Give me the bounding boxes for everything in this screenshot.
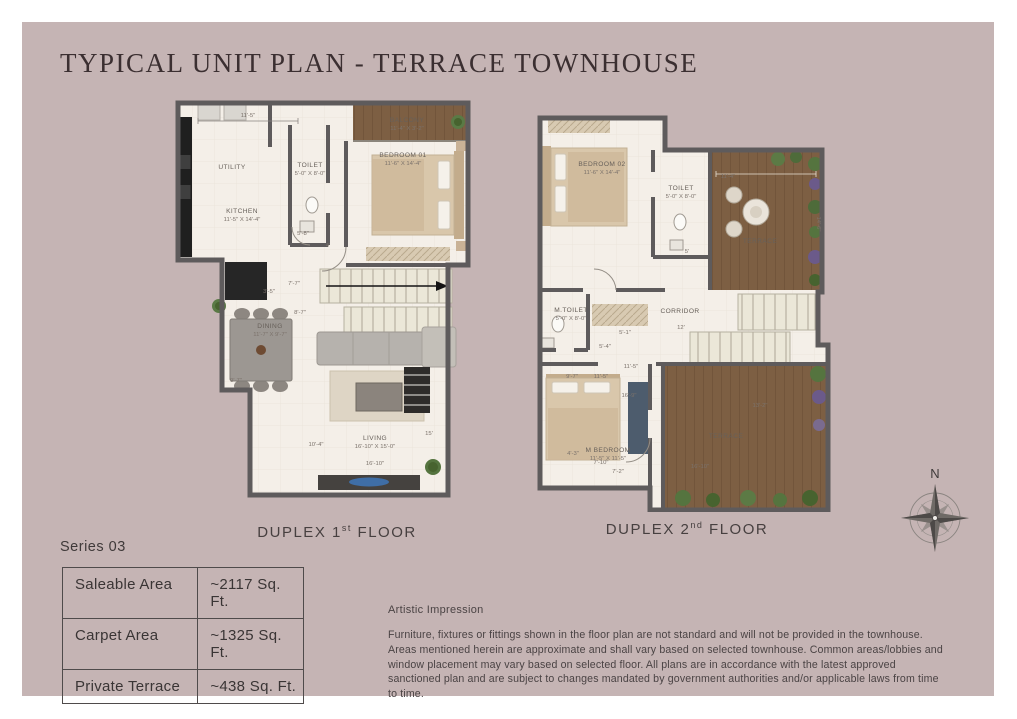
room-label: TOILET [668, 185, 693, 192]
caption-text: DUPLEX 2 [606, 521, 691, 538]
room-label: TOILET [297, 162, 322, 169]
table-row: Carpet Area ~1325 Sq. Ft. [63, 619, 303, 670]
table-row: Saleable Area ~2117 Sq. Ft. [63, 568, 303, 619]
terrace-lower-deck [663, 364, 826, 508]
dimension-label: 16'-10" [366, 461, 384, 467]
dimension-label: 11'-5" [594, 374, 609, 380]
dimension-label: 9'-7" [230, 378, 242, 384]
caption-duplex-2nd: DUPLEX 2nd FLOOR [577, 520, 797, 538]
room-label: UTILITY [218, 164, 246, 171]
dimension-label: 5'-4" [599, 344, 611, 350]
dimension-label: 13'-2" [752, 403, 767, 409]
caption-text: DUPLEX 1 [257, 524, 342, 541]
dimension-label: 8'-7" [294, 310, 306, 316]
room-label: DINING [257, 323, 282, 330]
dimension-label: 11'-5" [241, 113, 256, 119]
caption-text: FLOOR [703, 521, 768, 538]
dimension-label: 7'-10" [593, 460, 608, 466]
room-label: M.TOILET [554, 307, 588, 314]
compass-icon: N [895, 460, 975, 560]
dimension-label: 16'-9" [621, 393, 636, 399]
ordinal-suffix: nd [690, 520, 703, 530]
dimension-label: 16'-10" [691, 464, 709, 470]
area-row-label: Saleable Area [63, 568, 198, 618]
dimension-label: 11'-4" X 3'-2" [390, 126, 424, 132]
dimension-label: 11'-5" X 14'-4" [224, 217, 261, 223]
brochure-page: TYPICAL UNIT PLAN - TERRACE TOWNHOUSE [0, 0, 1017, 719]
sheet-background: TYPICAL UNIT PLAN - TERRACE TOWNHOUSE [22, 22, 994, 696]
area-row-label: Private Terrace [63, 670, 198, 703]
disclaimer-block: Artistic Impression Furniture, fixtures … [388, 604, 950, 702]
dimension-label: 11'-7" X 9'-7" [253, 332, 287, 338]
dimension-label: 5'-0" X 8'-0" [666, 194, 697, 200]
ordinal-suffix: st [342, 523, 352, 533]
table-row: Private Terrace ~438 Sq. Ft. [63, 670, 303, 703]
room-label: CORRIDOR [660, 308, 699, 315]
dimension-label: 5' [685, 249, 689, 255]
corridor-closet [592, 304, 648, 326]
dimension-label: 3'-5" [263, 289, 275, 295]
area-table: Saleable Area ~2117 Sq. Ft. Carpet Area … [62, 567, 304, 704]
room-label: BEDROOM 01 [379, 152, 426, 159]
dimension-label: 11'-4" [721, 174, 736, 180]
dimension-label: 12' [677, 325, 685, 331]
compass-north-label: N [930, 466, 939, 481]
room-label: BALCONY [390, 117, 425, 124]
area-row-value: ~2117 Sq. Ft. [198, 568, 303, 618]
dimension-label: 5'-0" X 8'-0" [295, 171, 326, 177]
terrace-upper-deck [710, 151, 822, 290]
dimension-label: 4'-3" [567, 451, 579, 457]
dimension-label: 7'-2" [612, 469, 624, 475]
floor-plan-duplex-1st: UTILITYKITCHEN11'-5" X 14'-4"TOILET5'-0"… [170, 95, 475, 505]
room-label: KITCHEN [226, 208, 258, 215]
dimension-label: 15' [425, 431, 433, 437]
dimension-label: 11'-6" X 14'-4" [385, 161, 422, 167]
room-label: TERRACE [709, 433, 744, 440]
dimension-label: 5'-1" [619, 330, 631, 336]
dimension-label: 14'-6" [815, 216, 821, 231]
dimension-label: 11'-6" X 14'-4" [584, 170, 621, 176]
dimension-label: 11'-5" [624, 364, 639, 370]
room-label: M BEDROOM [586, 447, 631, 454]
dimension-label: 5'-8" [297, 231, 309, 237]
dimension-label: 5'-0" X 8'-0" [556, 316, 587, 322]
floor-plan-duplex-2nd: BEDROOM 0211'-6" X 14'-4"TOILET5'-0" X 8… [528, 112, 838, 512]
area-row-value: ~1325 Sq. Ft. [198, 619, 303, 669]
dimension-label: 16'-10" X 15'-0" [355, 444, 396, 450]
room-label: BEDROOM 02 [578, 161, 625, 168]
dimension-label: 9'-7" [566, 374, 578, 380]
dimension-label: 4' [326, 243, 330, 249]
dimension-label: 10'-4" [308, 442, 323, 448]
area-row-label: Carpet Area [63, 619, 198, 669]
caption-text: FLOOR [352, 524, 417, 541]
area-row-value: ~438 Sq. Ft. [198, 670, 303, 703]
room-label: TERRACE [743, 238, 778, 245]
disclaimer-heading: Artistic Impression [388, 604, 950, 616]
room-label: LIVING [363, 435, 387, 442]
dimension-label: 7'-7" [288, 281, 300, 287]
caption-duplex-1st: DUPLEX 1st FLOOR [222, 523, 452, 541]
page-title: TYPICAL UNIT PLAN - TERRACE TOWNHOUSE [60, 48, 698, 79]
disclaimer-body: Furniture, fixtures or fittings shown in… [388, 628, 950, 702]
series-label: Series 03 [60, 539, 126, 555]
